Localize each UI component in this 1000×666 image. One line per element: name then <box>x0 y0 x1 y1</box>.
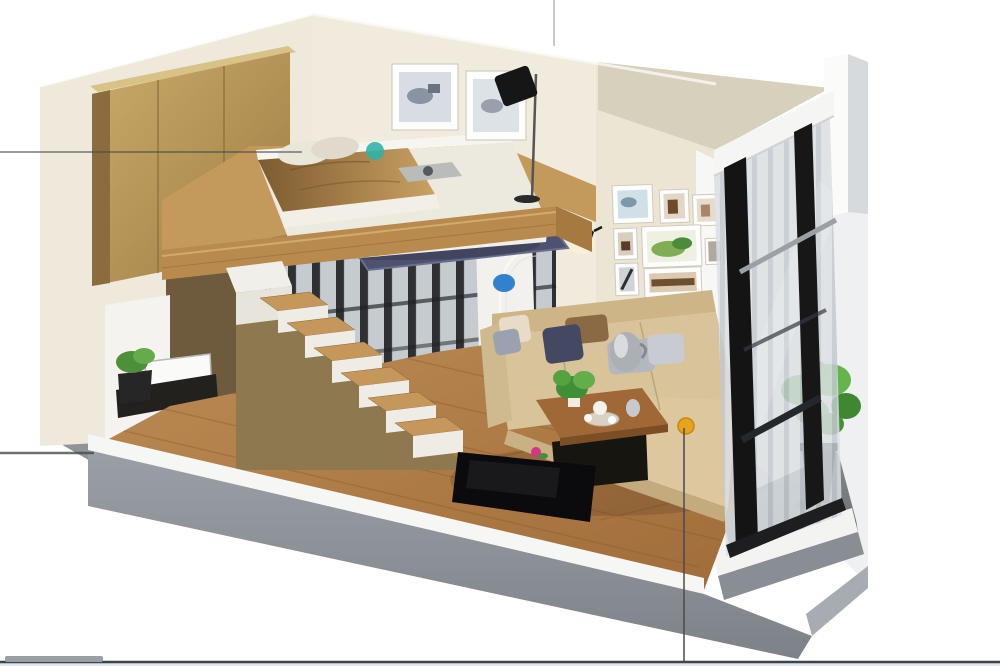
wardrobe-left-edge <box>92 90 110 286</box>
floor-lamp-base <box>514 195 540 203</box>
gallery-frame <box>612 184 653 223</box>
scrollbar-thumb[interactable] <box>5 656 103 662</box>
left-plant-pot <box>118 370 152 404</box>
right-wall-slab-edge <box>848 54 868 214</box>
hotspot-teal[interactable] <box>366 142 384 160</box>
picture-frame <box>392 64 458 130</box>
left-plant <box>116 348 155 404</box>
gallery-frame <box>614 228 638 260</box>
gallery-frame <box>642 225 702 268</box>
hotspot-blue[interactable] <box>493 274 515 292</box>
hotspot-orange[interactable] <box>678 418 694 434</box>
balcony-window-wall <box>714 90 846 558</box>
apartment-render <box>0 0 1000 666</box>
gallery-frame <box>615 263 639 296</box>
gallery-frame <box>659 189 689 223</box>
